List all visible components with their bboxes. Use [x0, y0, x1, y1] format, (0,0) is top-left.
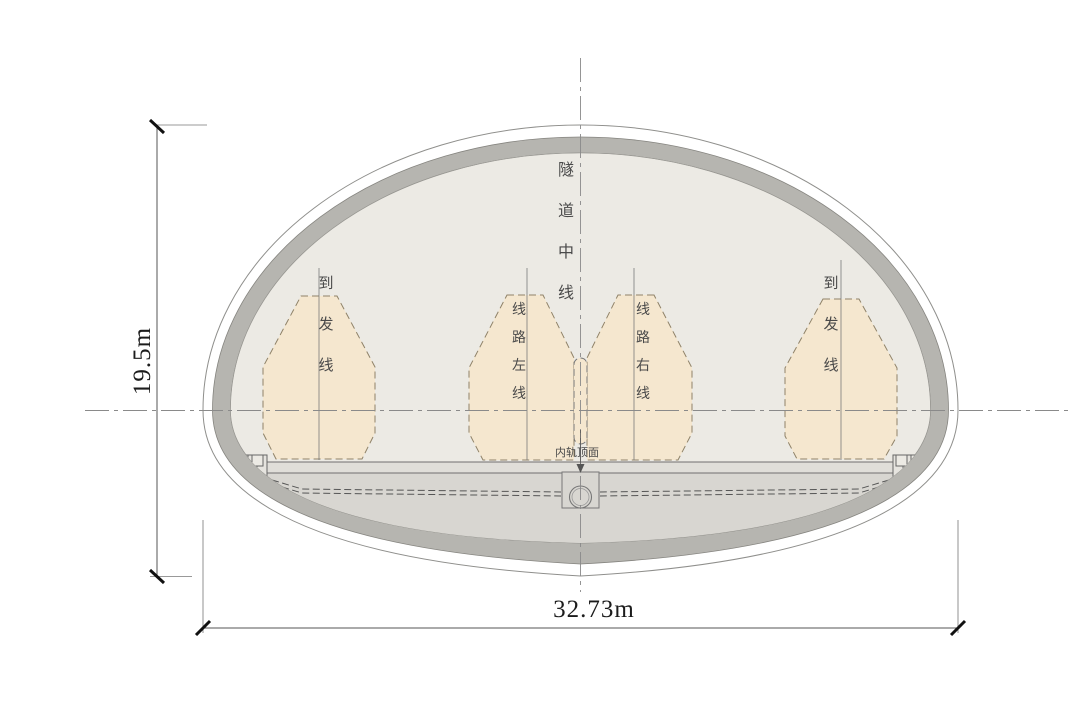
height-dimension — [150, 120, 207, 583]
label-arrival-departure-left: 到发线 — [317, 264, 335, 387]
label-line-right: 线路右线 — [634, 297, 652, 409]
tunnel-cross-section-diagram: 隧道中线 到发线 线路左线 线路右线 到发线 内轨顶面 19.5m 32.73m — [0, 0, 1085, 711]
width-dimension-label: 32.73m — [553, 596, 635, 624]
label-line-left: 线路左线 — [510, 297, 528, 409]
label-tunnel-centerline: 隧道中线 — [557, 150, 575, 314]
diagram-geometry — [0, 0, 1085, 711]
label-arrival-departure-right: 到发线 — [822, 264, 840, 387]
label-inner-rail-top: 内轨顶面 — [555, 444, 599, 460]
height-dimension-label: 19.5m — [129, 327, 157, 395]
